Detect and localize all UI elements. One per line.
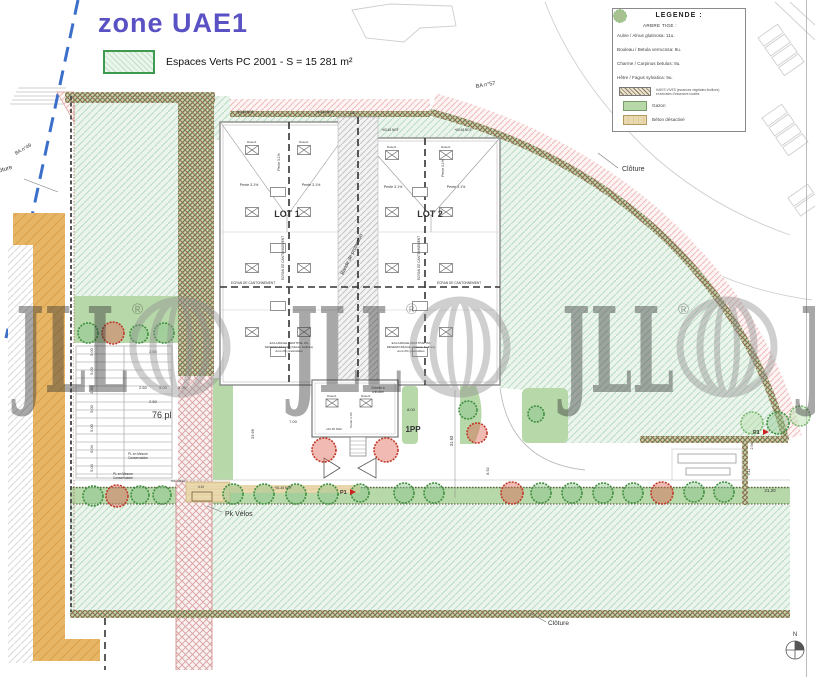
- legend-item-charme: Charme / Carpinus betulus: 8u.: [617, 57, 741, 70]
- legend-item-label: Béton désactivé: [652, 117, 685, 122]
- legend-item-label: Gazon: [652, 103, 666, 108]
- pk-velos-label: Pk Vélos: [225, 511, 253, 518]
- legend-item-aulne: Aulne / Alnus glutinosa: 11u.: [617, 29, 741, 42]
- legend-item-label: Charme / Carpinus betulus: 8u.: [617, 61, 681, 66]
- pente-label: Pente 3.1%: [302, 183, 321, 187]
- beton-swatch: [623, 115, 647, 125]
- desenf-label: Désenf.: [299, 140, 309, 144]
- svg-text:JLL: JLL: [285, 281, 402, 420]
- parking-count-label: 76 pl: [152, 410, 172, 420]
- ecran-label: ECRAN DE CANTONNEMENT: [231, 281, 275, 285]
- dimension-label: 1.8: [349, 110, 355, 115]
- tree-icon: [613, 9, 627, 23]
- ecran-label: ECRAN DE CANTONNEMENT: [437, 281, 481, 285]
- desenf-label: Désenf.: [441, 145, 451, 149]
- dimension-label: 5.00: [90, 424, 94, 431]
- svg-text:P1: P1: [340, 490, 347, 496]
- espaces-verts-legend: Espaces Verts PC 2001 - S = 15 281 m²: [103, 50, 352, 74]
- legend-item-label: Hêtre / Fagus sylvatica: 9u.: [617, 75, 673, 80]
- legend-hedge-label: HAIES VIVES (essences végétales feuillue…: [656, 88, 719, 92]
- ecran-label: ECRAN DE CANTONNEMENT: [281, 236, 285, 280]
- legend-title: LEGENDE :: [617, 12, 741, 21]
- dimension-label: 33.66: [250, 428, 255, 439]
- dimension-label: 31.93: [449, 435, 454, 446]
- legend-hedge-sublabel: et arbustes d'essences locales: [656, 92, 719, 96]
- svg-text:JLL: JLL: [795, 281, 815, 420]
- cloture-label: Clôture: [622, 166, 645, 173]
- dimension-label: 4.10: [198, 485, 204, 489]
- ngf-label: +61.45 NGF: [274, 486, 292, 490]
- cloture-label: Clôture: [0, 165, 14, 176]
- ngf-label: +63.48 NGF: [316, 110, 334, 114]
- legend-item-bouleau: Bouleau / Betula verrucosa: 8u.: [617, 43, 741, 56]
- espaces-verts-label: Espaces Verts PC 2001 - S = 15 281 m²: [166, 56, 352, 68]
- pente-label: Pente 3.1%: [447, 185, 466, 189]
- north-label: N: [793, 632, 797, 638]
- dimension-label: 5.04: [90, 464, 94, 471]
- ngf-label: +63.48 NGF: [236, 110, 254, 114]
- svg-text:®: ®: [406, 301, 417, 318]
- pp-label: 1PP: [405, 425, 421, 434]
- desenf-label: Désenf.: [387, 145, 397, 149]
- dimension-label: 6.11: [747, 469, 751, 476]
- dimension-label: 2.50: [139, 385, 148, 390]
- legend-item-label: Aulne / Alnus glutinosa: 11u.: [617, 33, 675, 38]
- pl-mesure-label: Conservatoire: [113, 476, 133, 480]
- desenf-label: Désenf.: [247, 140, 257, 144]
- svg-text:P1: P1: [753, 430, 760, 436]
- legend-item-hetre: Hêtre / Fagus sylvatica: 9u.: [617, 71, 741, 84]
- cloture-label: Clôture: [548, 620, 569, 627]
- dimension-label: 2.94: [750, 443, 754, 450]
- dimension-label: 6.04: [90, 445, 94, 452]
- legend-item-haies: HAIES VIVES (essences végétales feuillue…: [617, 85, 741, 98]
- tdl-cables-label: TDL câbles: [170, 479, 186, 483]
- dimension-label: 8.92: [486, 467, 490, 474]
- pl-mesure-label: Conservatoire: [128, 456, 148, 460]
- site-plan-canvas: LOT 1 LOT 2 Bande de protection Pente 3.…: [0, 0, 815, 677]
- hedge-swatch: [619, 87, 651, 96]
- leader-line: [24, 179, 58, 192]
- dimension-label: 8.00: [407, 407, 416, 412]
- lot2-label: LOT 2: [417, 209, 443, 219]
- ngf-label: +62.45 NGF: [326, 427, 343, 431]
- pente-label: Pente 3.1%: [277, 153, 281, 171]
- legend-item-gazon: Gazon: [617, 99, 741, 112]
- ecran-label: ECRAN DE CANTONNEMENT: [417, 236, 421, 280]
- lot1-label: LOT 1: [274, 209, 300, 219]
- legend-item-label: Bouleau / Betula verrucosa: 8u.: [617, 47, 681, 52]
- ba49-label: BA n°49: [14, 142, 33, 156]
- dimension-label: 21.20: [764, 488, 776, 493]
- svg-text:JLL: JLL: [11, 281, 128, 420]
- legend-section-label: ARBRE TIGE :: [643, 23, 741, 28]
- ngf-label: +63.48 NGF: [381, 128, 399, 132]
- svg-text:®: ®: [678, 301, 689, 318]
- page-title: zone UAE1: [98, 8, 248, 39]
- pente-label: Pente 3.1%: [384, 185, 403, 189]
- ba57-label: BA n°57: [475, 81, 496, 90]
- pente-label: Pente 3.1%: [240, 183, 259, 187]
- espaces-verts-swatch: [103, 50, 155, 74]
- svg-text:JLL: JLL: [557, 281, 674, 420]
- ngf-label: +63.48 NGF: [454, 128, 472, 132]
- pente-label: Pente 3.1%: [441, 159, 445, 177]
- legend-box: LEGENDE : ARBRE TIGE : Aulne / Alnus glu…: [612, 8, 746, 132]
- dimension-label: 2.50: [149, 399, 158, 404]
- gazon-swatch: [623, 101, 647, 111]
- north-arrow-icon: N: [786, 632, 804, 659]
- legend-item-beton: Béton désactivé: [617, 113, 741, 126]
